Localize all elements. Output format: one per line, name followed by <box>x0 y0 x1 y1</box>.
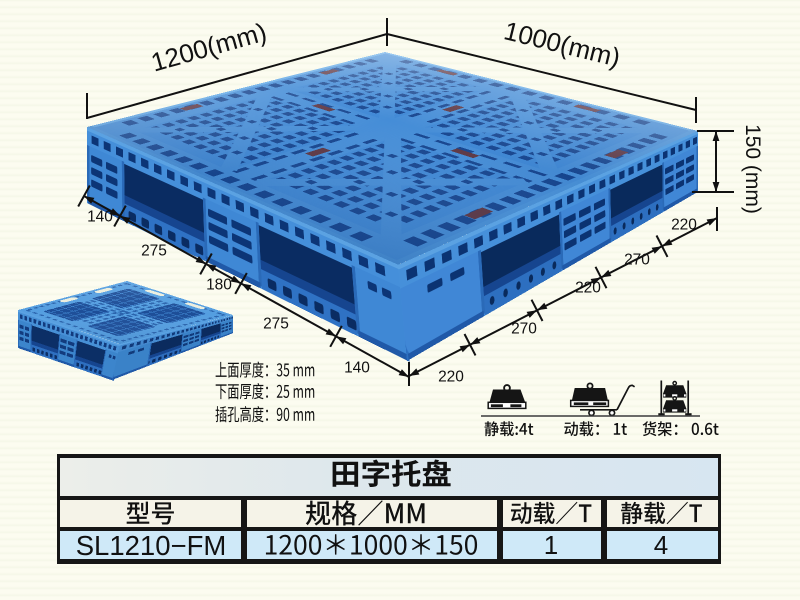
svg-text:220: 220 <box>438 369 464 386</box>
svg-text:140: 140 <box>87 209 113 226</box>
svg-text:275: 275 <box>141 243 167 260</box>
svg-text:1: 1 <box>544 530 558 560</box>
svg-text:SL1210−FM: SL1210−FM <box>76 530 227 561</box>
svg-text:220: 220 <box>575 280 601 297</box>
svg-text:1200(mm): 1200(mm) <box>148 17 270 78</box>
svg-text:140: 140 <box>344 360 370 377</box>
svg-text:270: 270 <box>624 252 650 269</box>
svg-text:275: 275 <box>263 316 289 333</box>
svg-text:270: 270 <box>511 321 537 338</box>
svg-text:1000(mm): 1000(mm) <box>501 15 623 72</box>
svg-text:150 (mm): 150 (mm) <box>741 124 764 214</box>
svg-text:4: 4 <box>654 530 668 560</box>
svg-text:220: 220 <box>671 217 697 234</box>
svg-text:180: 180 <box>206 277 232 294</box>
